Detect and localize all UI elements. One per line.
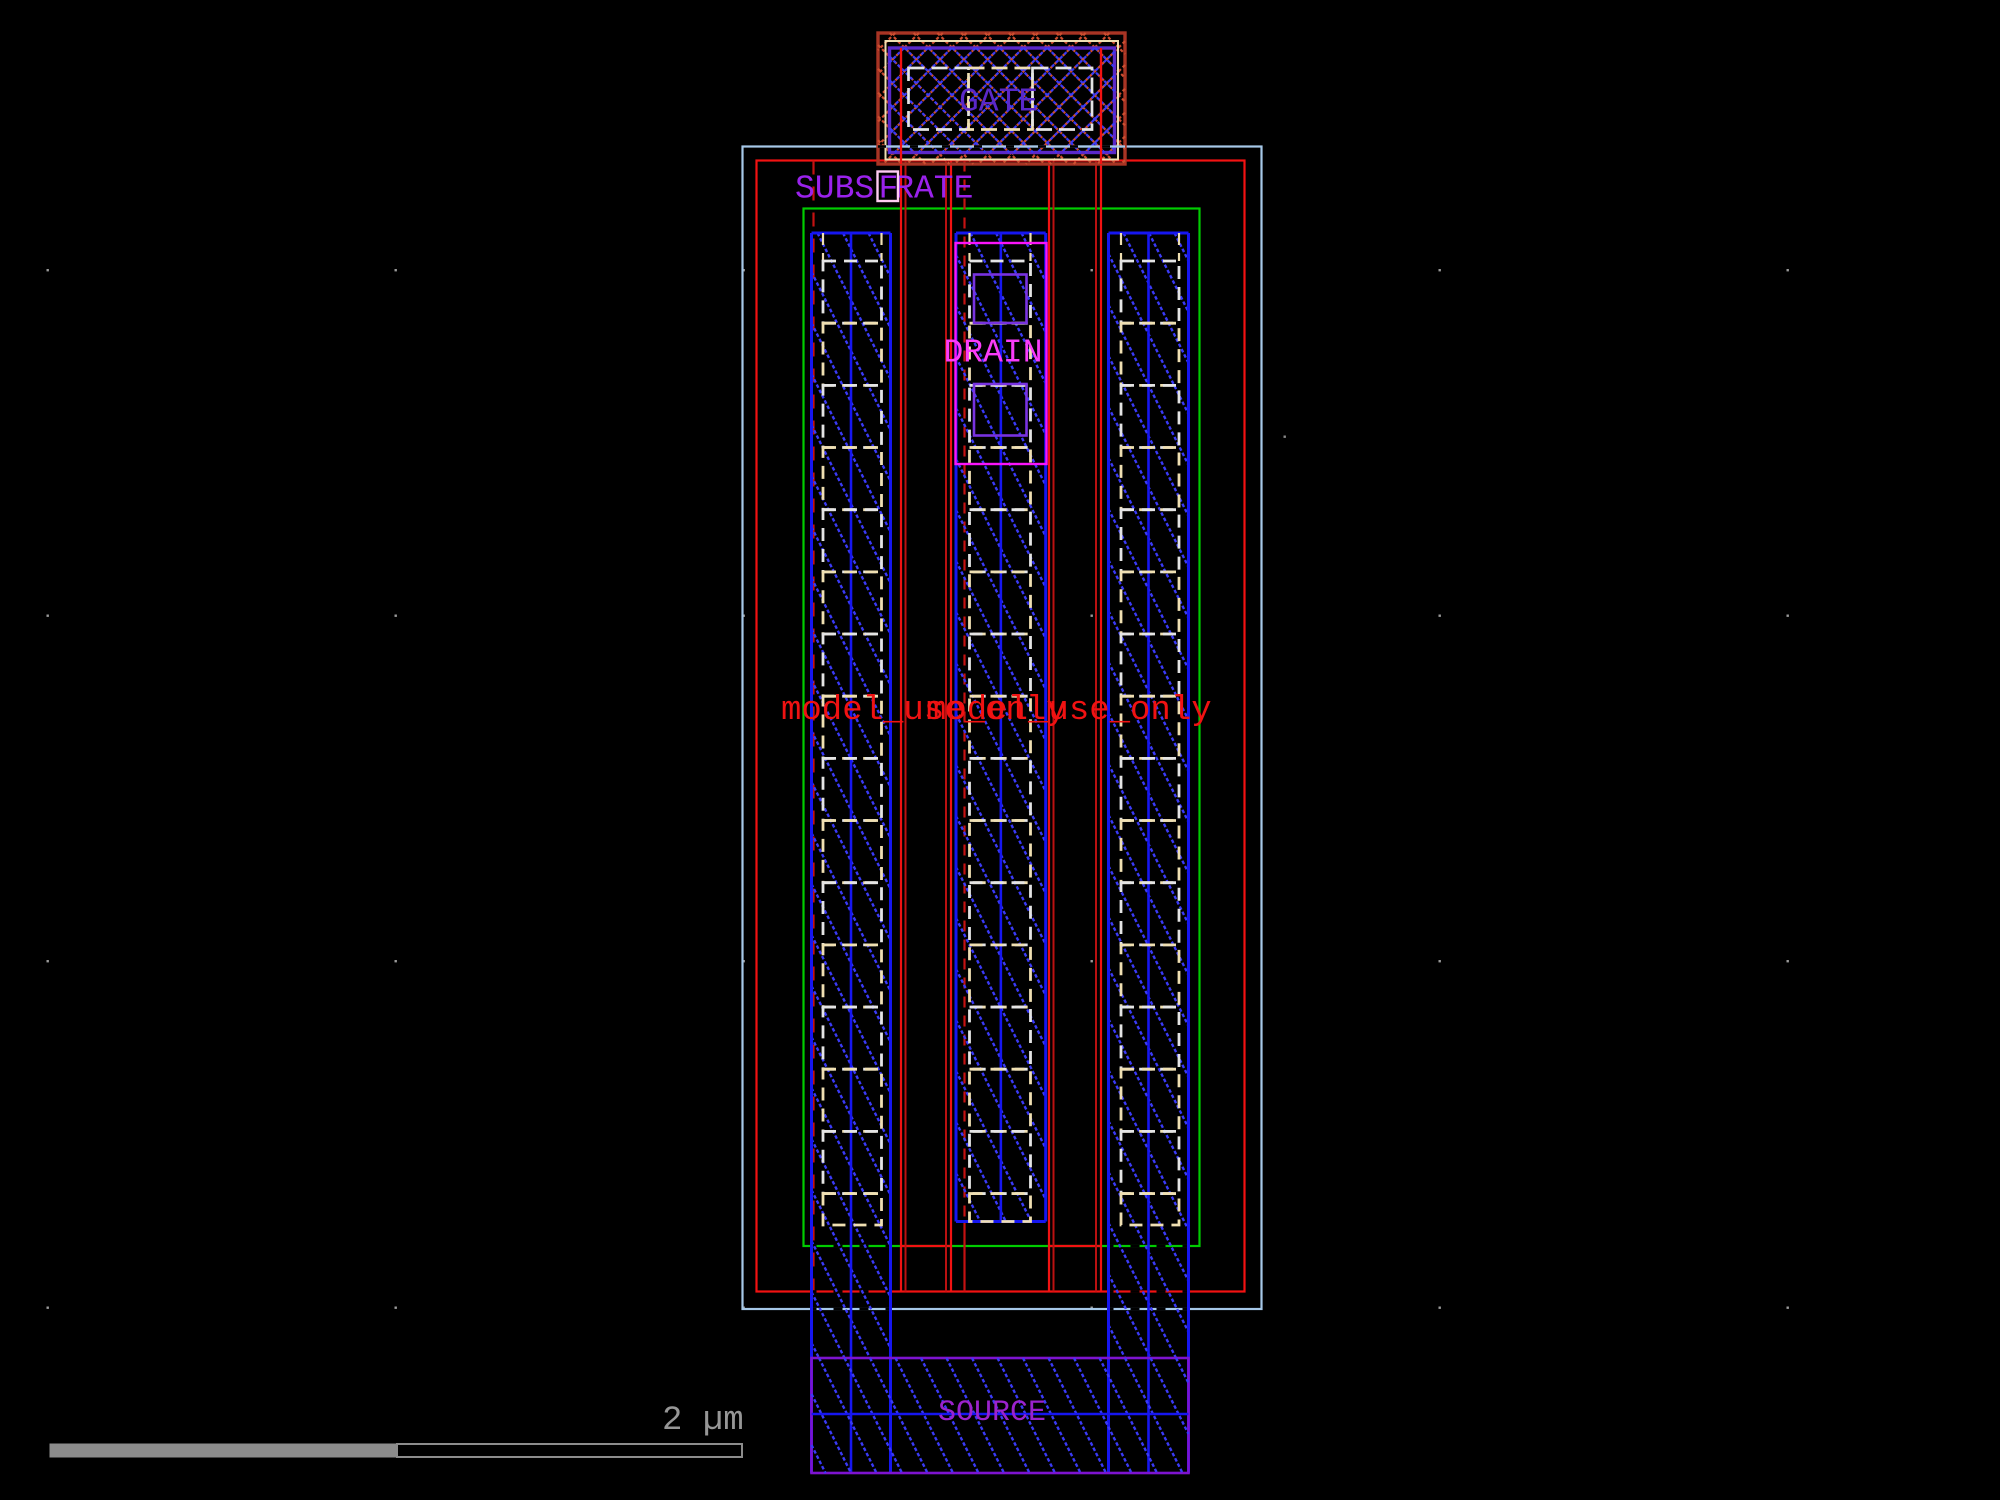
svg-text:model_use_only: model_use_only [926,692,1212,730]
svg-text:GATE: GATE [959,84,1038,121]
svg-text:2 µm: 2 µm [662,1402,744,1440]
svg-text:SOURCE: SOURCE [938,1396,1046,1430]
svg-text:DRAIN: DRAIN [944,335,1043,372]
svg-text:SUBS: SUBS [795,171,874,208]
svg-text:RATE: RATE [894,171,973,208]
